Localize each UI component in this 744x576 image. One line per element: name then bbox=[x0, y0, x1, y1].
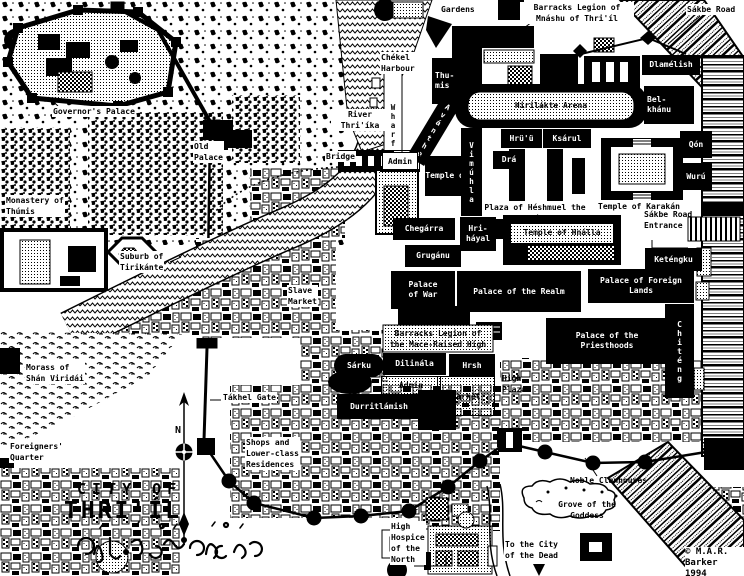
label-line: Grove of the bbox=[554, 499, 620, 510]
label-shops: Shops and Lower-class Residences bbox=[245, 437, 300, 470]
label-city-of-dead: To the City of the Dead bbox=[504, 539, 559, 561]
label-line: Sákbe Road bbox=[644, 209, 692, 220]
label-ketengku: Keténgku bbox=[645, 248, 702, 271]
compass-north-label: N bbox=[174, 425, 182, 436]
label-chekel-harbour: Chékel Harbour bbox=[380, 52, 416, 74]
label-line: Thri'íka bbox=[332, 120, 388, 131]
label-sakbe-road-top: Sákbe Road bbox=[686, 4, 736, 15]
label-hruu: Hrü'ü bbox=[501, 129, 542, 148]
label-palace-realm: Palace of the Realm bbox=[457, 271, 581, 312]
label-line: Glorious bbox=[478, 213, 592, 224]
label-line: Old bbox=[194, 141, 223, 152]
label-line: Thu- bbox=[435, 71, 454, 81]
label-hrsh: Hrsh bbox=[449, 354, 495, 377]
label-line: Palace of the bbox=[576, 331, 639, 341]
label-line: Slave bbox=[288, 285, 317, 296]
label-line: Market bbox=[288, 296, 317, 307]
label-line: Thúmis bbox=[6, 206, 64, 217]
label-line: Plaza of Héshmuel the bbox=[478, 202, 592, 213]
label-qon: Qón bbox=[680, 131, 712, 158]
label-line: Plaza bbox=[502, 384, 526, 395]
label-line: the Mace-Raised High bbox=[384, 339, 492, 350]
label-line: Quarter bbox=[10, 452, 63, 463]
label-bridge: Bridge bbox=[325, 151, 356, 162]
label-dlamelish: Dlamélish bbox=[642, 55, 700, 75]
label-old-palace: Old Palace bbox=[193, 141, 224, 163]
label-line: mis bbox=[435, 81, 449, 91]
label-line: Foreigners' bbox=[10, 441, 63, 452]
label-sakbe-entrance: Sákbe Road Entrance bbox=[643, 209, 693, 231]
label-line: Goddess bbox=[554, 510, 620, 521]
label-foreigners: Foreigners' Quarter bbox=[9, 441, 64, 463]
label-line: Chiténg bbox=[675, 320, 684, 383]
label-hirilakte-arena: Hirilákte Arena bbox=[468, 100, 634, 111]
attribution-line: © M.A.R. bbox=[685, 547, 744, 558]
label-line: Lower-class bbox=[246, 448, 299, 459]
label-line: Bel- bbox=[647, 95, 666, 105]
label-line: Palace bbox=[409, 280, 438, 290]
label-plaza-heshmuel: Plaza of Héshmuel the Glorious bbox=[477, 202, 593, 224]
label-grove: Grove of the Goddess bbox=[553, 499, 621, 521]
label-chiteng: Chiténg bbox=[665, 304, 694, 398]
label-barracks-mnashu: Barracks Legion of Mnáshu of Thri'íl bbox=[520, 2, 634, 24]
label-line: Hospice bbox=[391, 532, 425, 543]
label-line: Shops and bbox=[246, 437, 299, 448]
label-dilinala: Dilinála bbox=[383, 353, 446, 375]
label-takhel-gate: Tákhel Gate bbox=[222, 392, 277, 403]
label-line: High bbox=[502, 373, 526, 384]
label-line: Entrance bbox=[644, 220, 692, 231]
label-palace-war: Palace of War bbox=[391, 271, 455, 309]
label-line: Shán Viridái bbox=[26, 373, 84, 384]
label-gruganu: Grugánu bbox=[405, 245, 461, 267]
label-line: Palace bbox=[194, 152, 223, 163]
label-line: of the bbox=[391, 543, 425, 554]
label-line: River bbox=[332, 109, 388, 120]
label-belkhanu: Bel- khánu bbox=[644, 86, 694, 124]
label-sarku: Sárku bbox=[334, 354, 384, 377]
label-ksarul: Ksárul bbox=[543, 129, 591, 148]
label-line: Lands bbox=[629, 286, 653, 296]
city-title-line1: CITY OF bbox=[77, 480, 182, 498]
label-line: North bbox=[391, 554, 425, 565]
label-line: háyal bbox=[466, 234, 490, 244]
label-line: of War bbox=[409, 290, 438, 300]
label-line: Chékel bbox=[381, 52, 415, 63]
label-temple-hnalla: Temple of Hnálla bbox=[511, 227, 613, 238]
label-morass: Morass of Shán Viridái bbox=[25, 362, 85, 384]
label-suburb-tirikante: Suburb of Tirikánte bbox=[119, 251, 164, 273]
label-line: Harbour bbox=[381, 63, 415, 74]
label-line: Monastery of bbox=[6, 195, 64, 206]
city-title-line2: THRI'ÍL bbox=[64, 498, 182, 524]
label-line: Tirikánte bbox=[120, 262, 163, 273]
label-line: Suburb of bbox=[120, 251, 163, 262]
label-line: Barracks Legion of bbox=[384, 328, 492, 339]
city-map: Gardens Barracks Legion of Mnáshu of Thr… bbox=[0, 0, 744, 576]
label-line: Vimúhla bbox=[467, 141, 476, 204]
label-line: Mnáshu of Thri'íl bbox=[521, 13, 633, 24]
label-line: Wharf bbox=[389, 103, 398, 148]
attribution-line: Barker 1994 bbox=[685, 558, 744, 576]
label-durritlamish: Durritlámish bbox=[337, 394, 421, 419]
label-palace-priesthoods: Palace of the Priesthoods bbox=[546, 318, 668, 364]
label-chegarra: Chegárra bbox=[393, 218, 455, 240]
label-barracks-mace: Barracks Legion of the Mace-Raised High bbox=[384, 328, 492, 350]
label-river: River Thri'íka bbox=[331, 109, 389, 131]
label-line: Palace of Foreign bbox=[600, 276, 682, 286]
label-high-plaza: High Plaza bbox=[501, 373, 527, 395]
label-line: Hri- bbox=[468, 224, 487, 234]
label-line: khánu bbox=[647, 105, 671, 115]
label-dra: Drá bbox=[493, 151, 525, 169]
label-line: High bbox=[391, 521, 425, 532]
label-line: Morass of bbox=[26, 362, 84, 373]
label-wuru: Wurú bbox=[680, 163, 712, 190]
attribution: © M.A.R. Barker 1994 bbox=[685, 547, 744, 576]
label-slave-market: Slave Market bbox=[287, 285, 318, 307]
label-line: Barracks Legion of bbox=[521, 2, 633, 13]
label-line: of the Dead bbox=[505, 550, 558, 561]
label-hospice: High Hospice of the North bbox=[390, 521, 426, 565]
label-gardens: Gardens bbox=[440, 4, 476, 15]
label-line: Priesthoods bbox=[581, 341, 634, 351]
label-governors-palace: Governor's Palace bbox=[52, 106, 136, 117]
label-palace-foreign: Palace of Foreign Lands bbox=[588, 269, 694, 303]
label-market: Market bbox=[437, 376, 495, 416]
label-line: To the City bbox=[505, 539, 558, 550]
dead-city-monolith bbox=[580, 533, 612, 561]
label-admin-south: Admin bbox=[381, 376, 441, 395]
label-noble-clanhouses: Noble Clanhouses bbox=[569, 475, 648, 486]
label-line: Residences bbox=[246, 459, 299, 470]
label-monastery: Monastery of Thúmis bbox=[5, 195, 65, 217]
label-admin-north: Admin bbox=[382, 152, 418, 170]
